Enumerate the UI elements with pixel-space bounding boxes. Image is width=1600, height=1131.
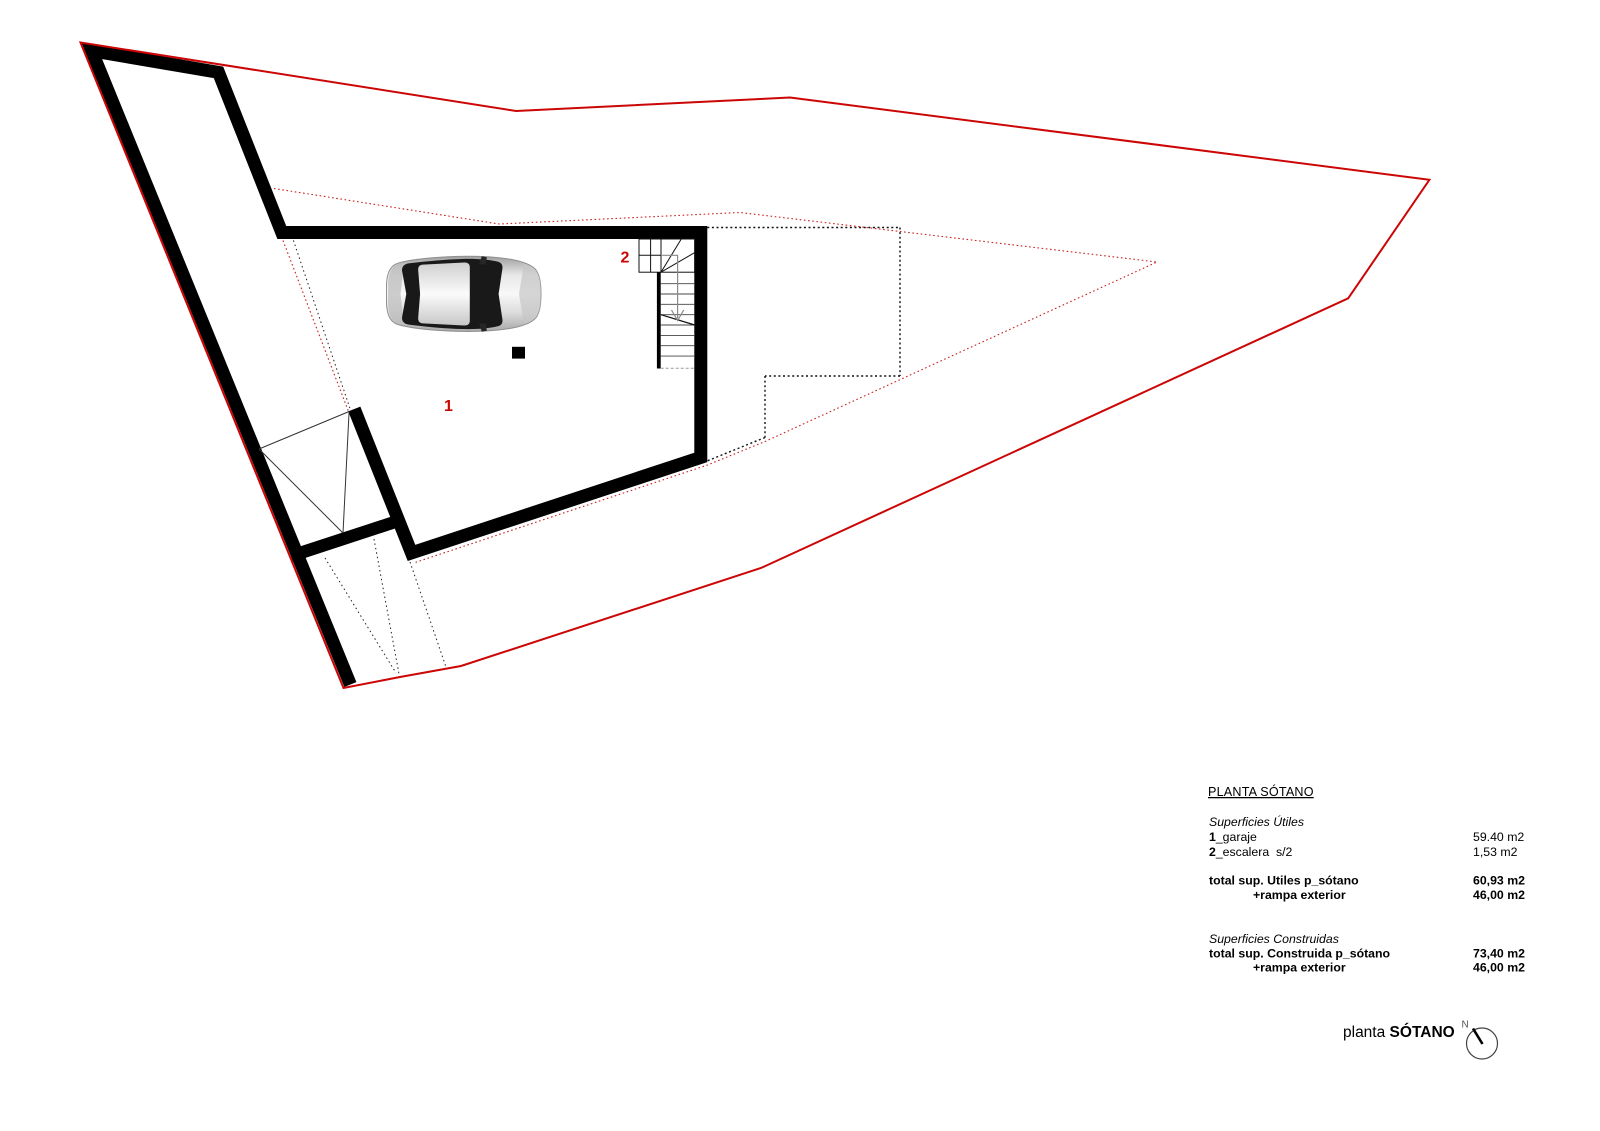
svg-text:N: N bbox=[1462, 1020, 1469, 1031]
svg-text:+rampa exterior: +rampa exterior bbox=[1253, 961, 1346, 975]
svg-text:73,40 m2: 73,40 m2 bbox=[1473, 947, 1525, 961]
svg-text:1_garaje: 1_garaje bbox=[1209, 830, 1257, 844]
svg-text:60,93 m2: 60,93 m2 bbox=[1473, 874, 1525, 888]
svg-text:1: 1 bbox=[444, 398, 453, 415]
svg-text:total sup. Construida p_sótano: total sup. Construida p_sótano bbox=[1209, 947, 1391, 961]
svg-text:2_escalera s/2: 2_escalera s/2 bbox=[1209, 845, 1293, 859]
svg-text:2: 2 bbox=[621, 250, 630, 267]
svg-text:Superficies Construidas: Superficies Construidas bbox=[1209, 932, 1339, 946]
svg-text:1,53 m2: 1,53 m2 bbox=[1473, 845, 1518, 859]
svg-text:Superficies Útiles: Superficies Útiles bbox=[1209, 814, 1304, 829]
svg-text:46,00 m2: 46,00 m2 bbox=[1473, 888, 1525, 902]
svg-text:PLANTA SÓTANO: PLANTA SÓTANO bbox=[1208, 784, 1314, 799]
svg-text:59.40 m2: 59.40 m2 bbox=[1473, 830, 1524, 844]
svg-text:planta SÓTANO: planta SÓTANO bbox=[1343, 1023, 1455, 1041]
svg-text:+rampa exterior: +rampa exterior bbox=[1253, 888, 1346, 902]
svg-text:total sup. Utiles p_sótano: total sup. Utiles p_sótano bbox=[1209, 874, 1359, 888]
svg-text:46,00 m2: 46,00 m2 bbox=[1473, 961, 1525, 975]
